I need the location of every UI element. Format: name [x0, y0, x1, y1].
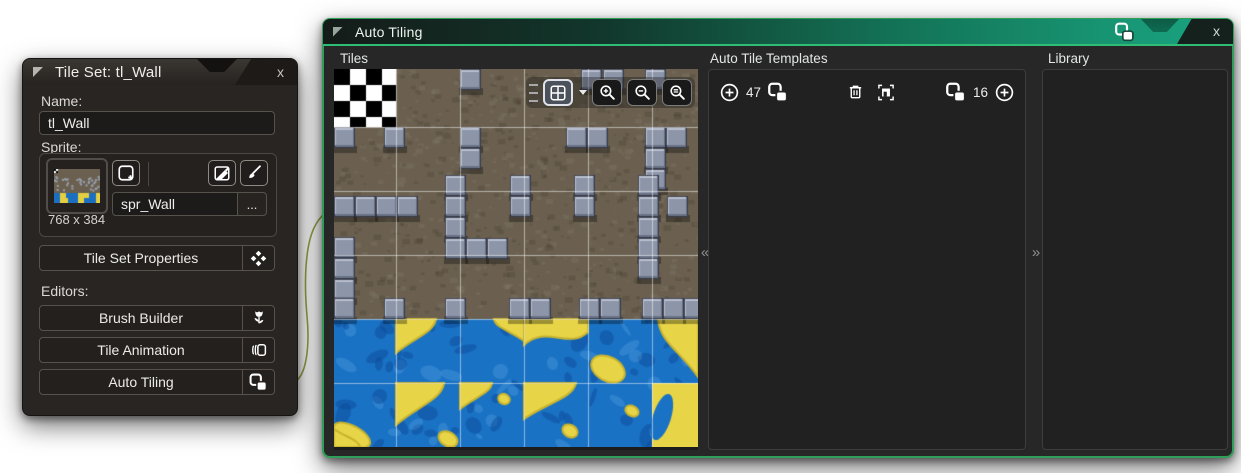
name-label: Name: [41, 93, 82, 109]
edit-sprite-button[interactable] [208, 160, 236, 186]
zoom-in-icon [598, 83, 617, 102]
collapse-right-handle[interactable]: » [1029, 244, 1043, 261]
tileset-properties-label: Tile Set Properties [84, 250, 199, 266]
autotile-icon [1114, 22, 1135, 42]
template-16-count: 16 [973, 85, 988, 100]
auto-tiling-window: Auto Tiling x Tiles [322, 18, 1234, 458]
brush-builder-label: Brush Builder [99, 310, 183, 326]
close-tab[interactable]: x [235, 59, 297, 85]
close-icon[interactable]: x [277, 59, 297, 85]
templates-toolbar: 47 [719, 78, 1015, 106]
titlebar-notch [197, 59, 237, 72]
tileset-window-title: Tile Set: tl_Wall [55, 64, 161, 81]
delete-template-button[interactable] [847, 83, 864, 101]
zoom-out-button[interactable] [627, 79, 657, 106]
name-input[interactable]: tl_Wall [39, 111, 275, 135]
zoom-in-button[interactable] [592, 79, 622, 106]
tiles-toolbar [526, 77, 695, 108]
grid-icon [549, 84, 567, 102]
sprite-group: 768 x 384 [39, 153, 277, 237]
paint-sprite-button[interactable] [240, 160, 268, 186]
tiles-label: Tiles [340, 51, 368, 66]
zoom-reset-button[interactable] [662, 79, 692, 106]
drag-handle-icon[interactable] [529, 84, 538, 102]
tiles-area[interactable] [334, 69, 698, 450]
tileset-canvas[interactable] [334, 69, 698, 447]
tileset-window: Tile Set: tl_Wall x Name: tl_Wall Sprite… [22, 58, 298, 416]
auto-tiling-titlebar[interactable]: Auto Tiling x [323, 19, 1233, 46]
brush-builder-button[interactable]: Brush Builder [39, 305, 275, 331]
auto-tiling-window-title: Auto Tiling [355, 24, 423, 40]
sprite-browse-button[interactable]: ... [237, 192, 267, 216]
sprite-name-field[interactable]: spr_Wall [112, 192, 238, 216]
zoom-out-icon [633, 83, 652, 102]
template-47-count: 47 [746, 85, 761, 100]
auto-tiling-label: Auto Tiling [108, 374, 173, 390]
template-frame-icon [876, 83, 896, 102]
tileset-properties-button[interactable]: Tile Set Properties [39, 245, 275, 271]
tileset-titlebar[interactable]: Tile Set: tl_Wall x [23, 59, 297, 85]
tile-animation-label: Tile Animation [97, 342, 184, 358]
sprite-toolbar-divider [148, 162, 149, 186]
card-stack-icon [242, 338, 274, 362]
tulip-icon [242, 306, 274, 330]
screenshot-stage: Tile Set: tl_Wall x Name: tl_Wall Sprite… [0, 0, 1241, 473]
add-16-template-button[interactable] [994, 82, 1015, 103]
grid-options-button[interactable] [543, 79, 573, 106]
paintbrush-icon [245, 164, 263, 182]
four-diamonds-icon [242, 246, 274, 270]
editors-label: Editors: [41, 283, 88, 299]
add-circle-icon [719, 82, 740, 103]
autotile-icon [767, 82, 789, 103]
close-tab[interactable]: x [1177, 19, 1233, 44]
tile-animation-button[interactable]: Tile Animation [39, 337, 275, 363]
sprite-size-text: 768 x 384 [48, 212, 105, 227]
auto-tiling-button[interactable]: Auto Tiling [39, 369, 275, 395]
collapse-triangle-icon[interactable] [333, 27, 343, 37]
sprite-thumbnail-frame[interactable] [46, 158, 108, 214]
add-sprite-icon [117, 164, 135, 182]
name-value: tl_Wall [48, 115, 90, 131]
add-47-template-button[interactable] [719, 82, 740, 103]
autotile-icon [242, 370, 274, 394]
templates-label: Auto Tile Templates [710, 51, 828, 66]
grid-dropdown-caret[interactable] [579, 90, 587, 95]
sprite-thumbnail [54, 169, 100, 203]
library-panel[interactable] [1042, 69, 1228, 450]
sprite-name-value: spr_Wall [121, 196, 175, 212]
add-sprite-button[interactable] [112, 160, 140, 186]
add-circle-icon [994, 82, 1015, 103]
template-preview-button[interactable] [876, 83, 896, 102]
titlebar-notch [1141, 19, 1179, 32]
library-label: Library [1048, 51, 1089, 66]
trash-icon [847, 83, 864, 101]
templates-panel: 47 [708, 69, 1026, 450]
collapse-triangle-icon[interactable] [33, 67, 43, 77]
zoom-reset-icon [668, 83, 687, 102]
autotile-icon [945, 82, 967, 103]
edit-sprite-icon [213, 164, 231, 182]
close-icon[interactable]: x [1213, 19, 1233, 44]
ellipsis-icon: ... [247, 197, 258, 212]
